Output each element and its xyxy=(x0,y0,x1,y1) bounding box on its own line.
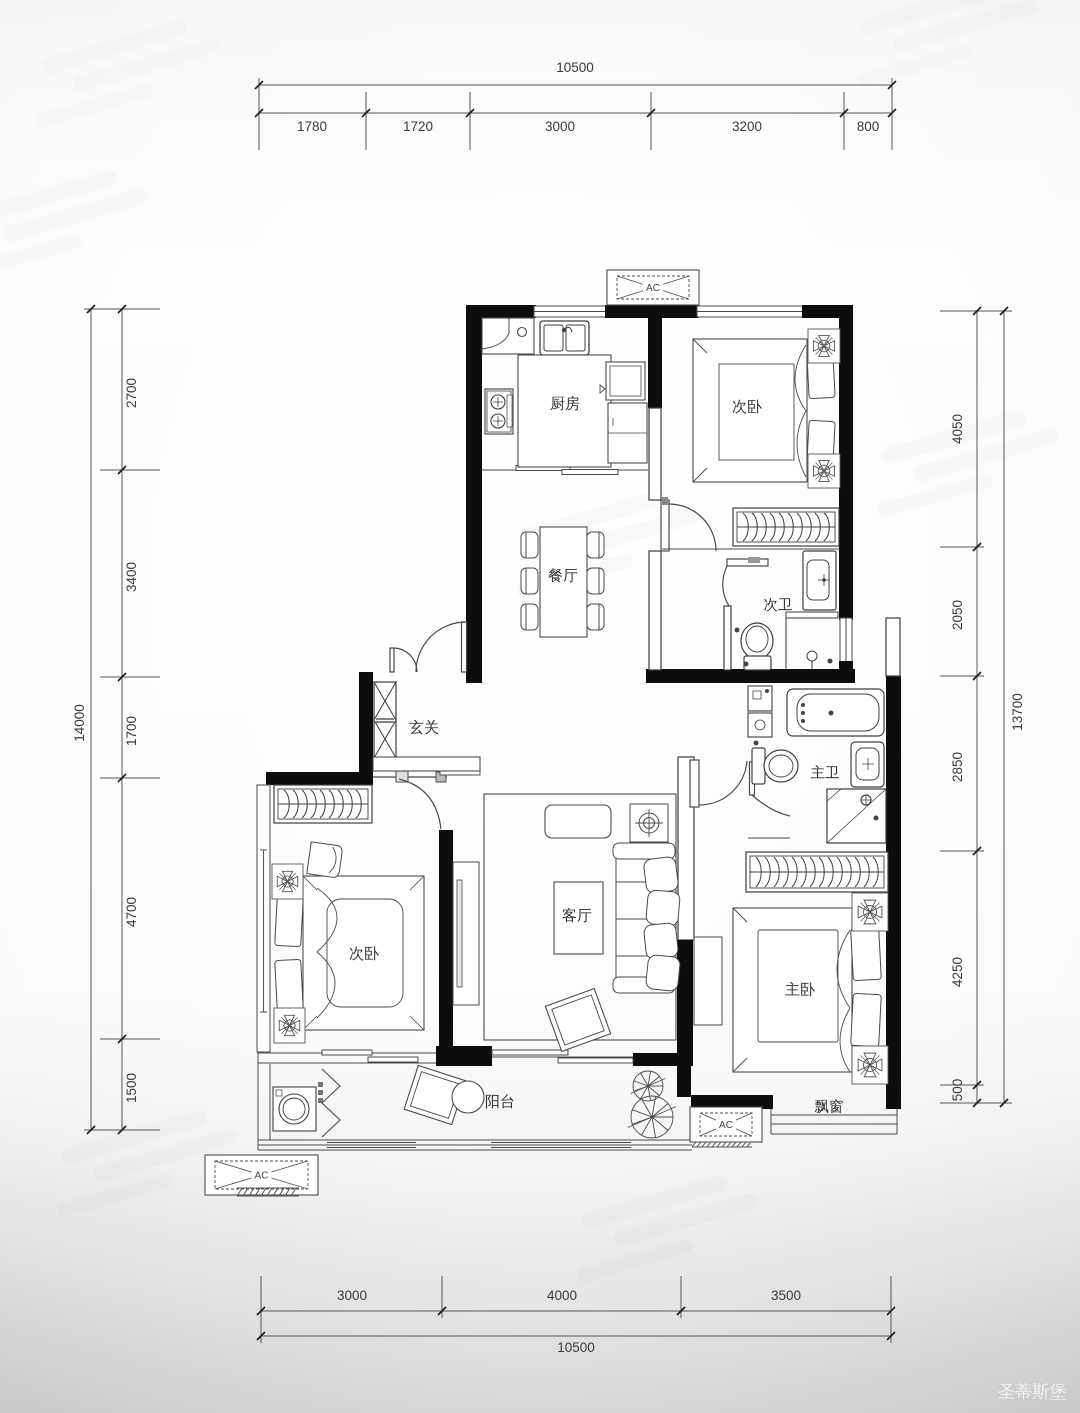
svg-text:1720: 1720 xyxy=(403,119,433,134)
svg-text:AC: AC xyxy=(646,283,660,294)
svg-text:4050: 4050 xyxy=(950,414,965,444)
svg-text:3500: 3500 xyxy=(771,1288,801,1303)
svg-text:2050: 2050 xyxy=(950,600,965,630)
svg-text:4250: 4250 xyxy=(950,957,965,987)
svg-text:AC: AC xyxy=(255,1171,269,1182)
svg-text:14000: 14000 xyxy=(72,704,87,742)
svg-text:3400: 3400 xyxy=(124,562,139,592)
svg-text:10500: 10500 xyxy=(557,1340,595,1355)
svg-text:1780: 1780 xyxy=(297,119,327,134)
svg-text:3200: 3200 xyxy=(732,119,762,134)
svg-text:4000: 4000 xyxy=(547,1288,577,1303)
svg-text:3000: 3000 xyxy=(545,119,575,134)
svg-text:2700: 2700 xyxy=(124,378,139,408)
svg-text:13700: 13700 xyxy=(1010,693,1025,731)
svg-text:3000: 3000 xyxy=(337,1288,367,1303)
svg-text:4700: 4700 xyxy=(124,897,139,927)
svg-text:500: 500 xyxy=(950,1079,965,1102)
svg-text:1700: 1700 xyxy=(124,716,139,746)
svg-text:1500: 1500 xyxy=(124,1073,139,1103)
svg-text:800: 800 xyxy=(857,119,880,134)
svg-text:2850: 2850 xyxy=(950,752,965,782)
svg-text:10500: 10500 xyxy=(556,60,594,75)
svg-text:AC: AC xyxy=(719,1120,733,1131)
